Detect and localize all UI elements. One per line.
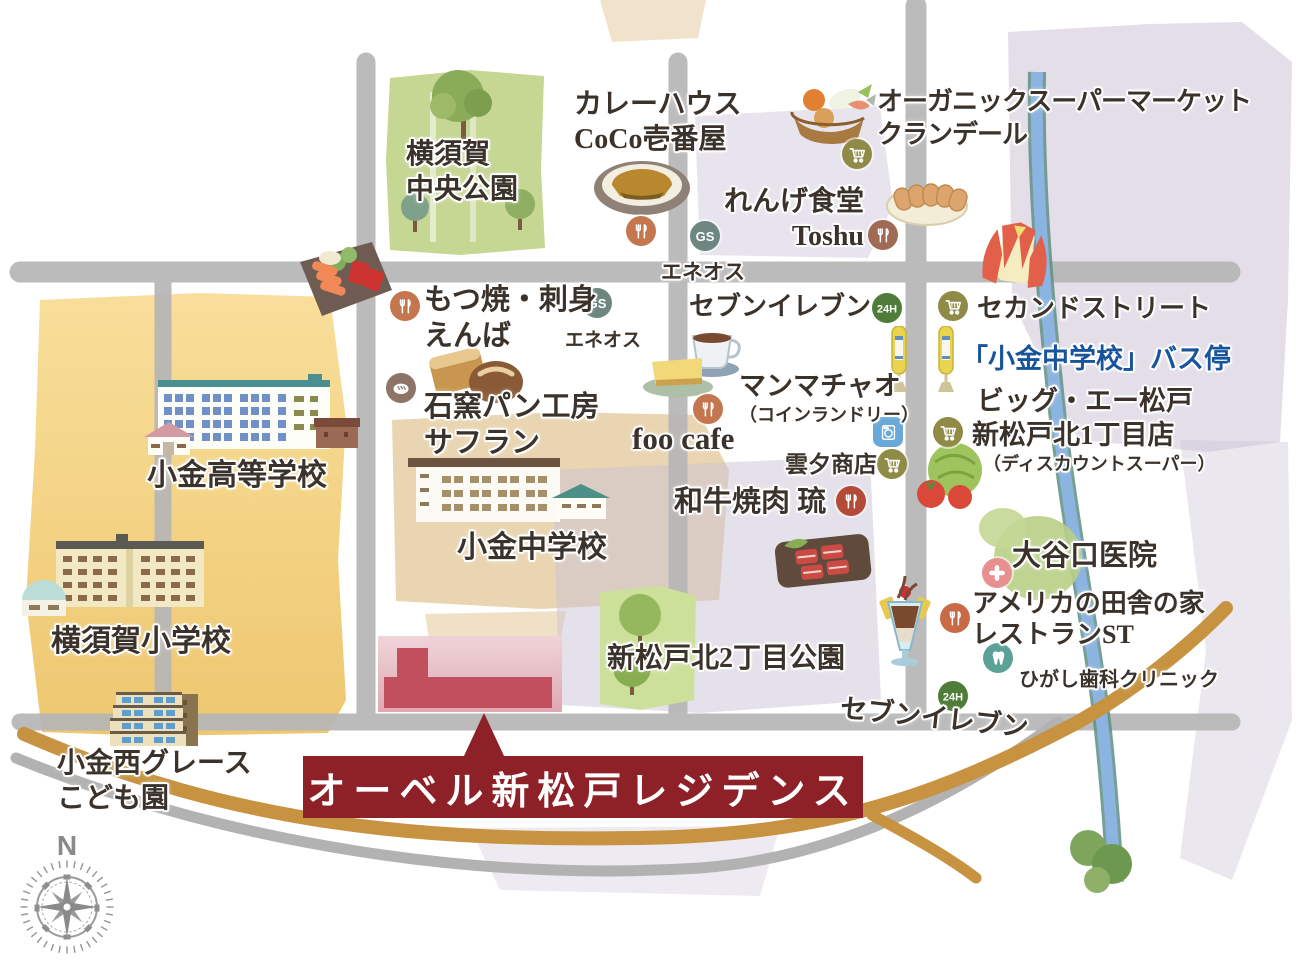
label-safran-bakery: 石窯パン工房 サフラン [424, 389, 599, 462]
label-line: 横須賀小学校 [51, 623, 231, 661]
label-line: 新松戸北1丁目店 [972, 419, 1216, 453]
shopping-cart-icon [842, 139, 872, 169]
label-line: エネオス [565, 329, 641, 353]
label-oyaguchi-clinic: 大谷口医院 [1012, 538, 1157, 574]
label-line: 新松戸北2丁目公園 [607, 641, 845, 676]
label-line: 「小金中学校」バス停 [961, 343, 1231, 377]
school-zone-yellow-patch [26, 293, 346, 736]
label-eneos-west: エネオス [565, 329, 641, 353]
tan-patch-top [600, 0, 706, 42]
label-line: foo cafe [632, 420, 734, 459]
label-line: 石窯パン工房 [424, 389, 599, 425]
cabbage-tomato-illustration [917, 443, 982, 509]
label-kogane-high-school: 小金高等学校 [147, 457, 327, 495]
gs-badge-text: GS [696, 229, 715, 244]
label-line: ひがし歯科クリニック [1019, 668, 1219, 693]
label-wagyu-yakiniku-ryu: 和牛焼肉 琉 [674, 484, 826, 520]
label-big-a-matsudo: ビッグ・エー松戸 新松戸北1丁目店 （ディスカウントスーパー） [977, 385, 1216, 475]
restaurant-icon [868, 220, 898, 250]
label-foo-cafe: foo cafe [632, 420, 734, 459]
label-line: （ディスカウントスーパー） [983, 453, 1216, 476]
label-line: マンマチャオ [739, 370, 919, 404]
label-line: 小金高等学校 [147, 457, 327, 495]
restaurant-icon [940, 603, 970, 633]
label-line: こども園 [57, 781, 252, 816]
kodomoen-building [110, 692, 198, 746]
label-line: （コインランドリー） [739, 404, 919, 427]
label-higashi-dental: ひがし歯科クリニック [1019, 668, 1219, 693]
label-line: レストランST [972, 619, 1205, 650]
label-kogane-nishi-grace: 小金西グレース こども園 [57, 746, 252, 816]
label-line: エネオス [661, 259, 745, 285]
label-renge-shokudo-toshu: れんげ食堂 Toshu [716, 184, 864, 254]
illustrated-area-map: N GS GS 24H 24H 横須賀 中央公園 カレーハウス CoCo壱番屋 … [0, 0, 1296, 968]
river-bushes [1070, 830, 1132, 893]
shopping-cart-icon [938, 291, 968, 321]
label-line: もつ焼・刺身 [424, 282, 597, 318]
shopping-cart-icon [933, 417, 963, 447]
label-line: Toshu [716, 219, 864, 254]
restaurant-icon [836, 486, 866, 516]
kogane-junior-high-building [408, 458, 560, 522]
label-line: ビッグ・エー松戸 [977, 385, 1216, 419]
label-second-street: セカンドストリート [977, 293, 1211, 326]
label-coco-ichibanya: カレーハウス CoCo壱番屋 [574, 87, 741, 157]
label-line: 大谷口医院 [1012, 538, 1157, 574]
label-yokosuka-elementary: 横須賀小学校 [51, 623, 231, 661]
label-line: 和牛焼肉 琉 [674, 484, 826, 520]
label-kogane-jhs-bus-stop: 「小金中学校」バス停 [961, 343, 1231, 377]
24h-badge-text: 24H [943, 692, 963, 704]
label-line: れんげ食堂 [716, 184, 864, 219]
open-24h-icon: 24H [872, 293, 902, 323]
banner-pointer-triangle [463, 713, 505, 758]
label-line: セカンドストリート [977, 293, 1211, 326]
restaurant-icon [390, 291, 420, 321]
gyoza-plate-illustration [887, 184, 969, 225]
label-kogane-junior-high: 小金中学校 [457, 529, 607, 567]
24h-badge-text: 24H [877, 304, 897, 316]
shopping-cart-icon [877, 449, 907, 479]
bus-stop-icon [934, 326, 958, 401]
label-line: アメリカの田舎の家 [972, 588, 1205, 619]
label-line: サフラン [424, 425, 599, 461]
label-line: クランデール [877, 119, 1251, 152]
label-american-country-restaurant: アメリカの田舎の家 レストランST [972, 588, 1205, 650]
label-line: 中央公園 [406, 172, 518, 207]
label-line: 横須賀 [406, 137, 518, 172]
property-name-banner: オーベル新松戸レジデンス [303, 756, 863, 818]
yokosuka-elementary-building [56, 534, 204, 607]
purple-patch-rightband [1180, 440, 1292, 880]
brown-barn [314, 418, 360, 448]
label-line: 小金中学校 [457, 529, 607, 567]
label-organic-supermarket: オーガニックスーパーマーケット クランデール [877, 86, 1251, 151]
label-line: カレーハウス [574, 87, 741, 122]
compass-rose: N [21, 830, 113, 953]
label-line: CoCo壱番屋 [574, 122, 741, 157]
property-name-text: オーベル新松戸レジデンス [307, 760, 858, 815]
label-yokosuka-chuo-park: 横須賀 中央公園 [406, 137, 518, 207]
compass-north-label: N [57, 830, 77, 861]
route-gold-branch [872, 815, 976, 878]
label-unyu-shoten: 雲夕商店 [785, 451, 877, 480]
curry-plate-illustration [594, 161, 690, 215]
label-line: 小金西グレース [57, 746, 252, 781]
label-line: オーガニックスーパーマーケット [877, 86, 1251, 119]
label-line: 雲夕商店 [785, 451, 877, 480]
label-shinmatsudo-kita2-park: 新松戸北2丁目公園 [607, 641, 845, 676]
label-seven-eleven-north: セブンイレブン [689, 291, 871, 324]
label-line: セブンイレブン [689, 291, 871, 324]
label-manmachao: マンマチャオ （コインランドリー） [739, 370, 919, 426]
restaurant-icon [626, 216, 656, 246]
clinic-cross-icon [982, 558, 1012, 588]
bakery-bread-icon [386, 373, 416, 403]
label-eneos-north: エネオス [661, 259, 745, 285]
